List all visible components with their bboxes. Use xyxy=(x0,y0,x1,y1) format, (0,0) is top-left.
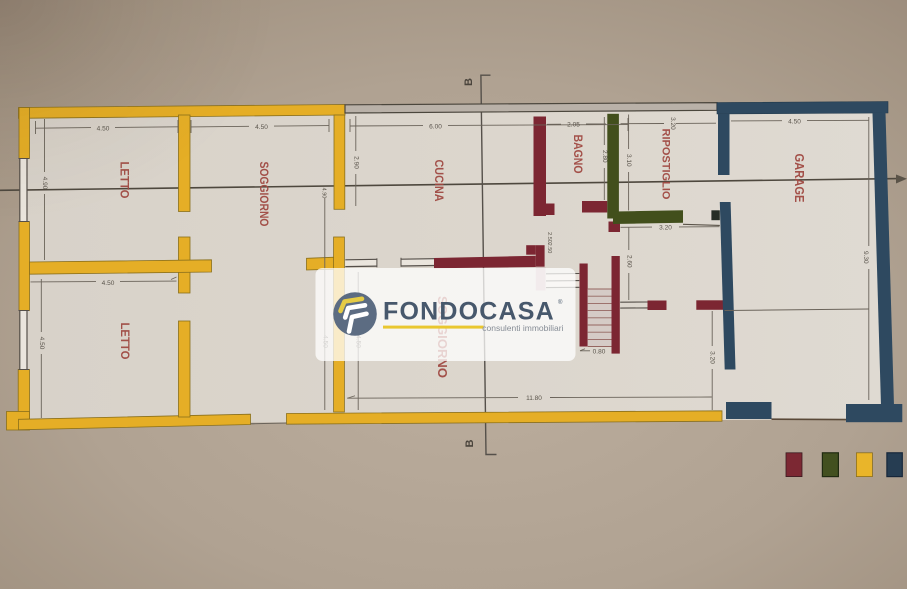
svg-text:BAGNO: BAGNO xyxy=(571,135,585,174)
svg-text:4.50: 4.50 xyxy=(788,119,801,126)
svg-text:2.60: 2.60 xyxy=(625,255,632,268)
svg-text:FONDOCASA: FONDOCASA xyxy=(383,298,555,326)
svg-text:RIPOSTIGLIO: RIPOSTIGLIO xyxy=(659,129,671,200)
svg-text:3.10: 3.10 xyxy=(625,154,632,167)
svg-text:2.50: 2.50 xyxy=(546,232,552,243)
svg-text:2.50: 2.50 xyxy=(546,243,552,254)
svg-text:®: ® xyxy=(558,299,563,306)
svg-text:0.80: 0.80 xyxy=(593,349,606,356)
svg-text:GARAGE: GARAGE xyxy=(792,154,806,203)
svg-text:consulenti immobiliari: consulenti immobiliari xyxy=(482,323,563,333)
svg-text:3.20: 3.20 xyxy=(659,224,672,231)
svg-text:2.05: 2.05 xyxy=(567,122,580,129)
svg-text:2.80: 2.80 xyxy=(601,150,608,163)
svg-text:3.20: 3.20 xyxy=(709,351,716,364)
svg-text:B: B xyxy=(464,439,476,447)
svg-text:9.30: 9.30 xyxy=(862,251,869,264)
svg-text:11.80: 11.80 xyxy=(526,395,542,402)
